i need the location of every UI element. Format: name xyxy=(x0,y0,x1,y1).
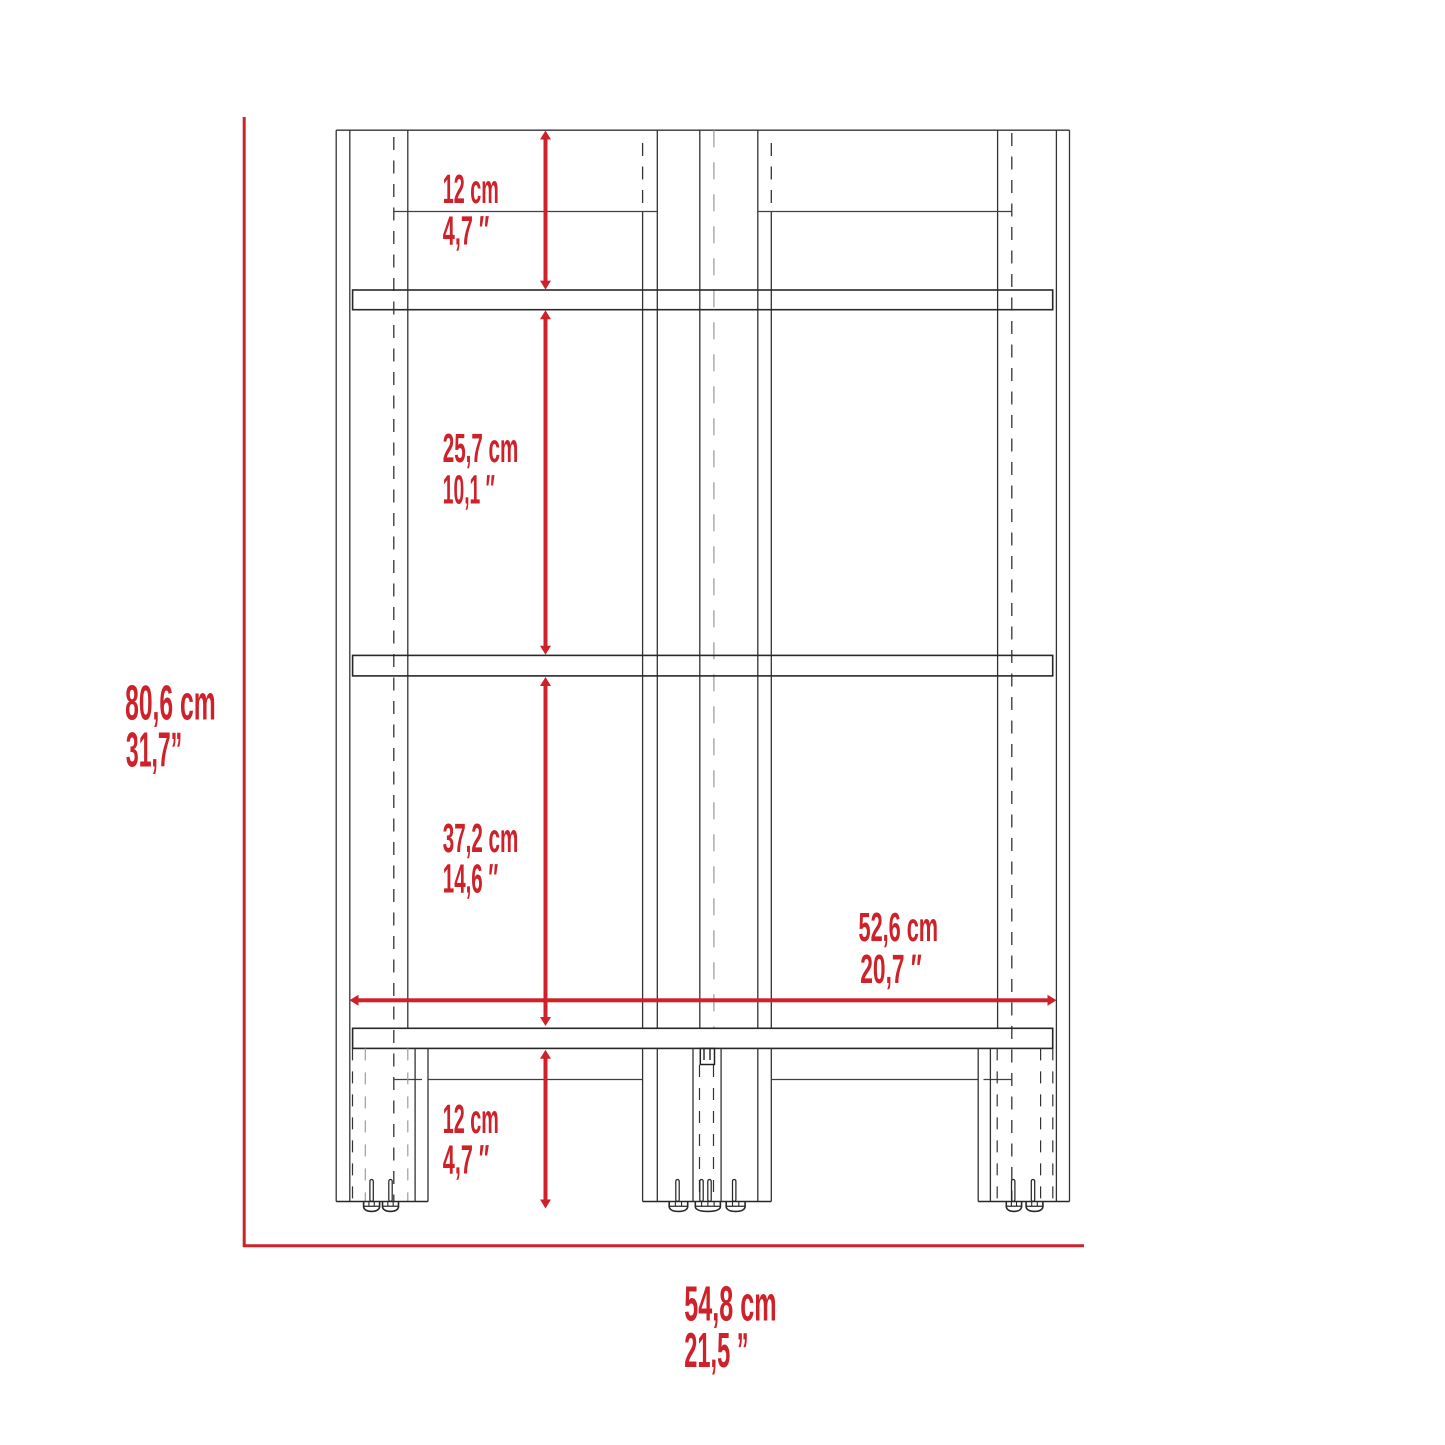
svg-text:4,7 ″: 4,7 ″ xyxy=(443,1137,489,1183)
svg-text:10,1 ″: 10,1 ″ xyxy=(443,467,495,513)
svg-text:4,7 ″: 4,7 ″ xyxy=(443,207,489,253)
svg-text:21,5 ”: 21,5 ” xyxy=(684,1324,748,1378)
svg-text:12 cm: 12 cm xyxy=(443,166,499,212)
svg-text:20,7 ″: 20,7 ″ xyxy=(860,946,921,992)
svg-text:80,6 cm: 80,6 cm xyxy=(125,677,216,731)
svg-text:37,2 cm: 37,2 cm xyxy=(443,815,519,861)
svg-text:31,7”: 31,7” xyxy=(126,724,182,778)
svg-text:12 cm: 12 cm xyxy=(443,1096,499,1142)
svg-text:52,6 cm: 52,6 cm xyxy=(859,904,939,950)
svg-text:25,7 cm: 25,7 cm xyxy=(443,425,519,471)
svg-text:14,6 ″: 14,6 ″ xyxy=(443,856,498,902)
